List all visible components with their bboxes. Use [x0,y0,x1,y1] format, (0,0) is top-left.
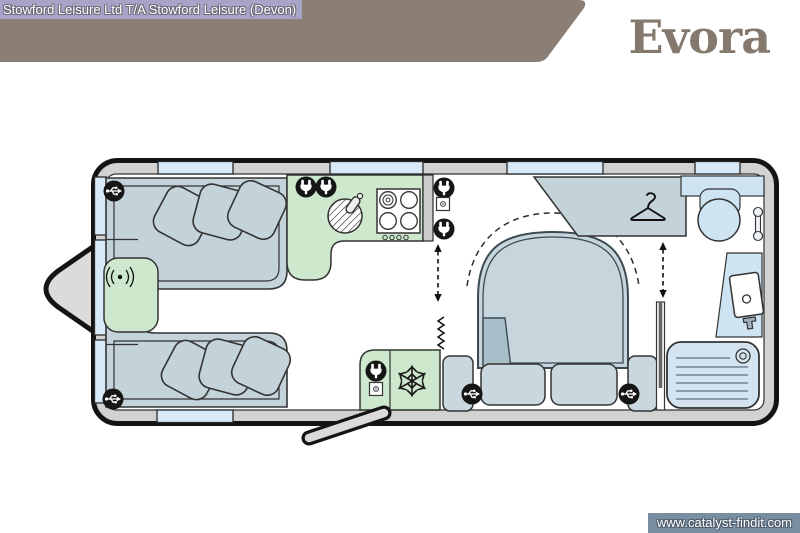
caravan-floorplan [0,0,800,533]
bed-drawer [551,364,617,405]
mains-plug-socket-icon [434,178,455,199]
mains-plug-socket-icon [366,361,387,382]
mains-plug-socket-icon [296,177,317,198]
window-top-bedroom [507,162,603,175]
window-bottom-lounge [157,410,233,423]
window-front-1 [95,177,107,235]
basin-icon [698,189,740,241]
watermark-url: www.catalyst-findit.com [648,513,800,533]
bed-drawer [481,364,545,405]
kitchen-partition [423,175,433,241]
switch-icon [437,198,450,211]
switch-icon [370,383,383,396]
usb-socket-icon [103,389,124,410]
hitch [46,244,97,334]
hob-icon [377,189,420,240]
fridge [360,350,440,410]
sliding-door [657,302,665,410]
mains-plug-socket-icon [434,219,455,240]
usb-socket-icon [462,384,483,405]
window-top-lounge [158,162,233,175]
window-top-washroom [695,162,740,175]
mains-plug-socket-icon [316,177,337,198]
shower-tray-icon [667,342,759,408]
usb-socket-icon [619,384,640,405]
window-top-kitchen [330,162,423,175]
usb-socket-icon [104,181,125,202]
